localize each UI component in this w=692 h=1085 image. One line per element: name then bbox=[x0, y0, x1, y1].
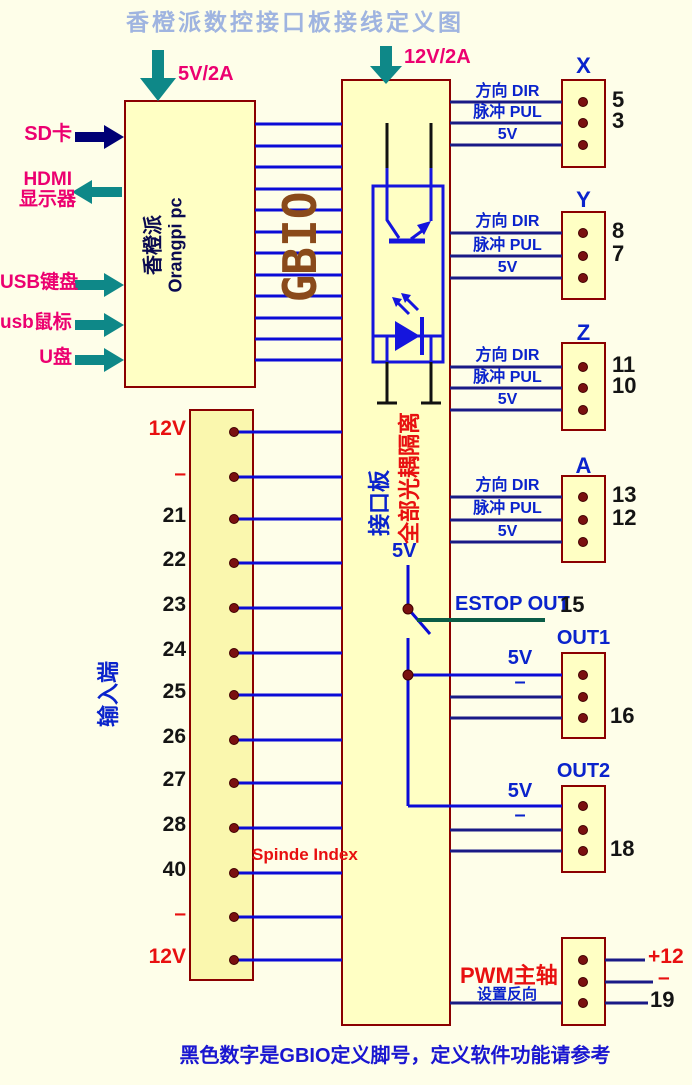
out2-5v-label: 5V bbox=[495, 781, 545, 802]
axis-y-pin-dir: 8 bbox=[612, 219, 624, 242]
input-pin-12v-bottom: 12V bbox=[100, 946, 186, 968]
udisk-label: U盘 bbox=[0, 348, 72, 368]
axis-z-pul-label: 脉冲 PUL bbox=[455, 370, 560, 387]
axis-z-name: Z bbox=[562, 321, 605, 344]
axis-a-pin-pul: 12 bbox=[612, 506, 636, 529]
axis-a-5v-label: 5V bbox=[455, 524, 560, 541]
input-pin-minus-bottom: – bbox=[100, 903, 186, 925]
axis-x-5v-label: 5V bbox=[455, 127, 560, 144]
footer-note: 黑色数字是GBIO定义脚号，定义软件功能请参考 bbox=[95, 1046, 692, 1067]
out2-pin: 18 bbox=[610, 837, 634, 860]
udisk-arrow-icon bbox=[75, 348, 124, 372]
power-5v-label: 5V/2A bbox=[178, 64, 234, 85]
axis-y-5v-label: 5V bbox=[455, 260, 560, 277]
out1-minus-label: – bbox=[495, 672, 545, 693]
axis-z-pin-pul: 10 bbox=[612, 374, 636, 397]
axis-a-pul-label: 脉冲 PUL bbox=[455, 501, 560, 518]
usb-mouse-label: usb鼠标 bbox=[0, 313, 71, 333]
page-title: 香橙派数控接口板接线定义图 bbox=[110, 10, 480, 34]
axis-a-name: A bbox=[562, 454, 605, 477]
input-pin-40: 40 bbox=[100, 859, 186, 881]
power-12v-label: 12V/2A bbox=[404, 47, 471, 68]
hdmi-arrow-icon bbox=[72, 180, 122, 204]
input-pin-24: 24 bbox=[100, 639, 186, 661]
hdmi-label-line2: 显示器 bbox=[0, 190, 76, 210]
axis-z-dir-label: 方向 DIR bbox=[455, 348, 560, 365]
board-5v-label: 5V bbox=[392, 541, 416, 562]
out1-name: OUT1 bbox=[556, 628, 611, 649]
power-arrow-5v-icon bbox=[140, 50, 176, 101]
input-pin-26: 26 bbox=[100, 726, 186, 748]
axis-y-name: Y bbox=[562, 188, 605, 211]
out2-name: OUT2 bbox=[556, 761, 611, 782]
input-pin-23: 23 bbox=[100, 594, 186, 616]
axis-x-name: X bbox=[562, 54, 605, 77]
out1-5v-label: 5V bbox=[495, 648, 545, 669]
input-pin-22: 22 bbox=[100, 549, 186, 571]
axis-x-pul-label: 脉冲 PUL bbox=[455, 105, 560, 122]
out2-minus-label: – bbox=[495, 805, 545, 826]
input-pin-28: 28 bbox=[100, 814, 186, 836]
pwm-pin-19: 19 bbox=[650, 988, 674, 1011]
axis-y-pul-label: 脉冲 PUL bbox=[455, 238, 560, 255]
sd-arrow-icon bbox=[75, 125, 124, 149]
pwm-pin-plus12: +12 bbox=[648, 946, 684, 968]
input-pin-21: 21 bbox=[100, 505, 186, 527]
axis-wires bbox=[450, 102, 562, 542]
interface-board-label: 接口板 bbox=[362, 470, 394, 536]
out1-pin: 16 bbox=[610, 704, 634, 727]
estop-label: ESTOP OUT bbox=[455, 594, 570, 615]
pwm-pin-minus: – bbox=[658, 967, 670, 989]
power-arrow-12v-icon bbox=[370, 46, 402, 84]
input-pin-25: 25 bbox=[100, 681, 186, 703]
axis-y-pin-pul: 7 bbox=[612, 242, 624, 265]
input-pin-minus-top: – bbox=[100, 463, 186, 485]
input-pin-12v-top: 12V bbox=[100, 418, 186, 440]
sd-card-label: SD卡 bbox=[0, 124, 72, 145]
orangepi-name-cn: 香橙派 bbox=[137, 215, 166, 275]
axis-a-pin-dir: 13 bbox=[612, 483, 636, 506]
usb-keyboard-label: USB键盘 bbox=[0, 273, 73, 293]
axis-z-5v-label: 5V bbox=[455, 392, 560, 409]
pwm-title: PWM主轴 bbox=[460, 964, 558, 987]
axis-x-dir-label: 方向 DIR bbox=[455, 84, 560, 101]
wiring-diagram: 香橙派数控接口板接线定义图 5V/2A 12V/2A SD卡 HDMI 显示器 … bbox=[0, 0, 692, 1085]
axis-a-dir-label: 方向 DIR bbox=[455, 478, 560, 495]
estop-pin: 15 bbox=[560, 593, 584, 616]
orangepi-name-en: Orangpi pc bbox=[166, 197, 187, 292]
usb-keyboard-arrow-icon bbox=[75, 273, 124, 297]
usb-mouse-arrow-icon bbox=[75, 313, 124, 337]
gbio-label: GBIO bbox=[273, 192, 327, 303]
spindle-index-label: Spinde Index bbox=[252, 846, 358, 864]
pwm-subtitle: 设置反向 bbox=[477, 987, 537, 1003]
input-pin-27: 27 bbox=[100, 769, 186, 791]
hdmi-label-line1: HDMI bbox=[0, 170, 72, 190]
isolation-label: 全部光耦隔离 bbox=[392, 412, 424, 544]
axis-y-dir-label: 方向 DIR bbox=[455, 214, 560, 231]
axis-x-pin-pul: 3 bbox=[612, 109, 624, 132]
